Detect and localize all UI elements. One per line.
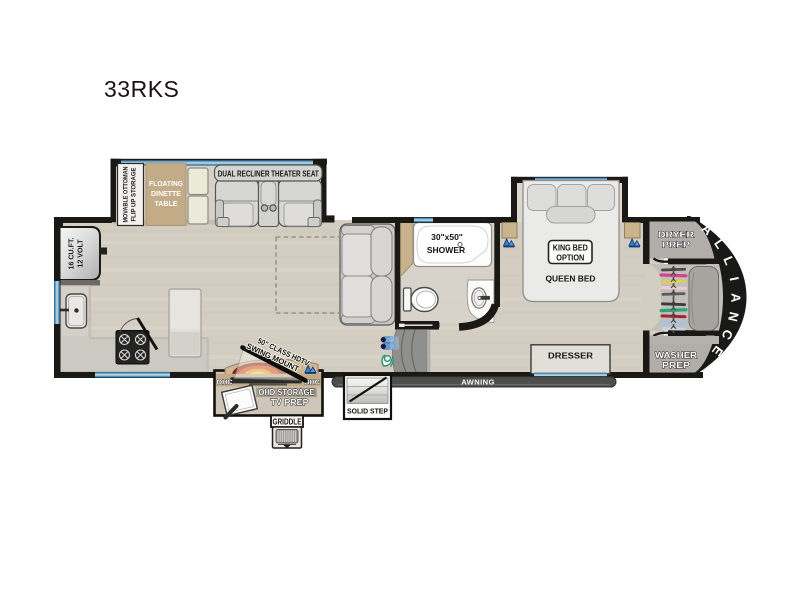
svg-text:DRYER: DRYER: [658, 230, 694, 239]
svg-text:PREP: PREP: [662, 361, 690, 370]
svg-text:TABLE: TABLE: [155, 199, 178, 208]
svg-text:12 VOLT: 12 VOLT: [77, 239, 85, 268]
svg-text:SOLID STEP: SOLID STEP: [347, 407, 388, 416]
svg-text:AWNING: AWNING: [461, 378, 495, 387]
svg-text:WASHER: WASHER: [655, 351, 697, 360]
svg-text:GRIDDLE: GRIDDLE: [273, 418, 303, 427]
svg-text:FLIP UP STORAGE: FLIP UP STORAGE: [130, 167, 137, 222]
svg-text:OHC: OHC: [217, 377, 234, 386]
svg-text:TV PREP: TV PREP: [271, 398, 310, 407]
svg-text:FLOATING: FLOATING: [149, 179, 183, 188]
svg-text:30"x50": 30"x50": [431, 232, 463, 242]
svg-text:PREP: PREP: [662, 240, 690, 249]
svg-text:QUEEN BED: QUEEN BED: [546, 274, 596, 284]
svg-text:OHD STORAGE: OHD STORAGE: [259, 388, 316, 397]
svg-text:DUAL RECLINER THEATER SEAT: DUAL RECLINER THEATER SEAT: [218, 169, 319, 178]
svg-text:OPTION: OPTION: [556, 253, 584, 262]
svg-text:DRESSER: DRESSER: [548, 351, 594, 361]
svg-text:DINETTE: DINETTE: [151, 189, 181, 198]
svg-text:MOVABLE OTTOMAN: MOVABLE OTTOMAN: [122, 166, 129, 222]
svg-text:33RKS: 33RKS: [104, 76, 179, 102]
svg-text:A: A: [728, 293, 743, 303]
svg-text:KING BED: KING BED: [553, 243, 588, 252]
svg-text:16 CU.FT.: 16 CU.FT.: [68, 238, 76, 270]
